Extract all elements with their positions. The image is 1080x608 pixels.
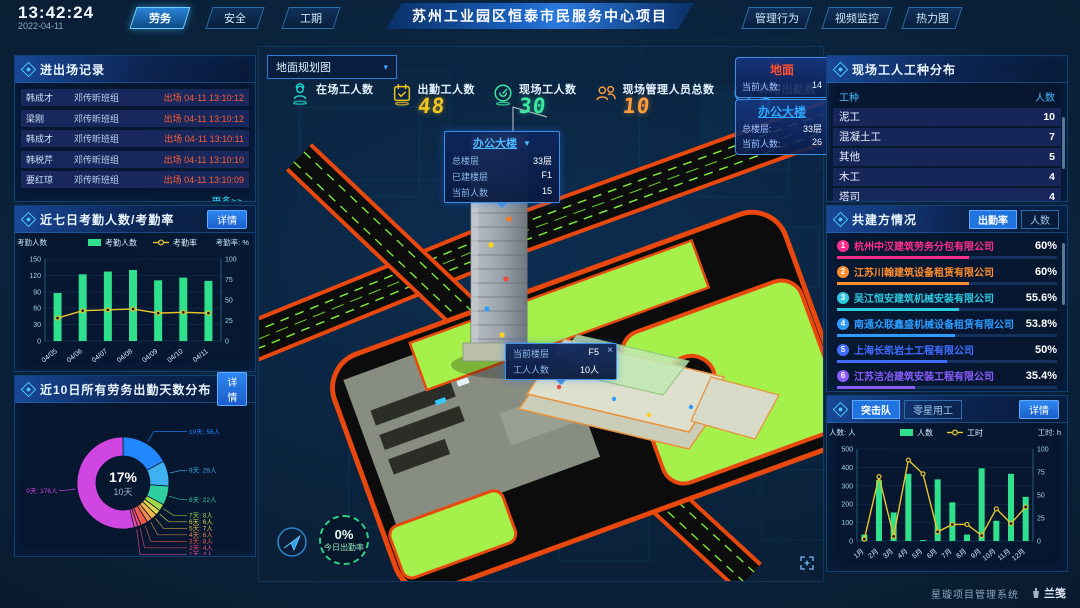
fullscreen-expand-icon[interactable] — [799, 555, 815, 571]
partner-value: 50% — [1035, 344, 1057, 356]
tower-logo-icon — [1031, 587, 1041, 599]
people-icon — [594, 81, 618, 107]
more-link[interactable]: 更多>> — [15, 192, 255, 202]
brand-logo: 兰笺 — [1031, 585, 1066, 601]
gauge-icon — [492, 81, 514, 107]
svg-text:考勤人数: 考勤人数 — [17, 237, 47, 247]
stat-onsite-workers: 在场工人数 — [289, 81, 374, 107]
svg-text:25: 25 — [1037, 516, 1045, 523]
worker-name: 韩税芹 — [26, 153, 74, 166]
worker-type-name: 混凝土工 — [839, 129, 1049, 144]
partner-value: 60% — [1035, 266, 1057, 278]
exit-time: 出场 04-11 13:10:10 — [164, 153, 244, 166]
tab-safety[interactable]: 安全 — [205, 7, 264, 29]
progress-fill — [837, 334, 955, 337]
svg-text:04/07: 04/07 — [91, 348, 109, 364]
entry-record-row: 梁刚邓传昕班组出场 04-11 13:10:12 — [21, 110, 249, 127]
svg-text:100: 100 — [1037, 447, 1049, 454]
current-date: 2022-04-11 — [18, 22, 94, 31]
partner-list: 1杭州中汉建筑劳务分包有限公司60%2江苏川翰建筑设备租赁有限公司60%3吴江恒… — [827, 238, 1067, 389]
team-name: 邓传昕班组 — [74, 91, 164, 104]
exit-time: 出场 04-11 13:10:12 — [164, 112, 244, 125]
scrollbar[interactable] — [1062, 117, 1065, 169]
svg-text:04/06: 04/06 — [66, 348, 84, 364]
panel-diamond-icon — [833, 61, 849, 77]
partner-name: 吴江恒安建筑机械安装有限公司 — [854, 290, 1021, 305]
partner-value: 60% — [1035, 240, 1057, 252]
attendance-days-donut-chart: 10天: 56人9天: 29人8天: 22人7天: 8人6天: 6人5天: 7人… — [15, 403, 251, 555]
worker-types-table: 泥工10混凝土工7其他5木工4塔司4 — [827, 108, 1067, 201]
tab-schedule[interactable]: 工期 — [281, 7, 340, 29]
worker-icon — [289, 81, 311, 107]
partner-name: 江苏洁冶建筑安装工程有限公司 — [854, 368, 1021, 383]
svg-text:75: 75 — [225, 277, 233, 284]
rank-badge: 5 — [837, 344, 849, 356]
svg-text:10天: 10天 — [113, 487, 132, 497]
panel-diamond-icon — [21, 381, 37, 397]
progress-track — [837, 308, 1057, 311]
panel-diamond-icon — [833, 211, 849, 227]
worker-type-count: 4 — [1049, 191, 1055, 201]
rank-badge: 1 — [837, 240, 849, 252]
worker-type-count: 4 — [1049, 171, 1055, 183]
worker-type-name: 塔司 — [839, 189, 1049, 201]
layer-select-value: 地面规划图 — [276, 59, 331, 75]
panel-diamond-icon — [833, 401, 849, 417]
svg-text:10月: 10月 — [981, 547, 998, 562]
svg-text:300: 300 — [841, 483, 853, 490]
worker-name: 韩成才 — [26, 132, 74, 145]
progress-fill — [837, 308, 959, 311]
worker-name: 梁刚 — [26, 112, 74, 125]
team-name: 邓传昕班组 — [74, 132, 164, 145]
svg-text:考勤人数: 考勤人数 — [105, 238, 137, 248]
building-info-popup: 办公大楼 ▼ 总楼层33层 已建楼层F1 当前人数15 — [444, 131, 560, 203]
svg-text:工时: 工时 — [967, 428, 983, 438]
svg-text:75: 75 — [1037, 470, 1045, 477]
svg-text:0: 0 — [37, 339, 41, 346]
chevron-down-icon[interactable]: ▼ — [523, 139, 531, 148]
svg-text:120: 120 — [29, 273, 41, 280]
tab-video-monitor[interactable]: 视频监控 — [821, 7, 892, 29]
tab-headcount[interactable]: 人数 — [1021, 210, 1059, 229]
svg-text:04/09: 04/09 — [141, 348, 159, 364]
tab-assault-team[interactable]: 突击队 — [852, 400, 900, 419]
panel-7day-attendance: 近七日考勤人数/考勤率 详情 0306090120150025507510004… — [14, 205, 256, 372]
map-layer-select[interactable]: 地面规划图 ▾ — [267, 55, 397, 79]
progress-fill — [837, 360, 947, 363]
svg-text:人数: 人数 — [917, 428, 933, 438]
building-popup-title[interactable]: 办公大楼 — [473, 135, 517, 151]
svg-text:04/11: 04/11 — [192, 348, 210, 364]
progress-track — [837, 386, 1057, 389]
panel-title: 进出场记录 — [40, 61, 247, 78]
site-3d-view: 地面规划图 ▾ 在场工人数 出勤工人数48 现场工人数30 — [258, 46, 824, 582]
project-title-banner: 苏州工业园区恒泰市民服务中心项目 — [386, 3, 694, 29]
panel-title: 共建方情况 — [852, 211, 963, 228]
system-name: 星璇项目管理系统 — [931, 586, 1019, 601]
panel-diamond-icon — [21, 211, 37, 227]
svg-text:人数: 人: 人数: 人 — [829, 427, 856, 437]
svg-text:2月: 2月 — [867, 547, 881, 560]
svg-text:1月: 1月 — [852, 547, 866, 560]
svg-text:0: 0 — [1037, 539, 1041, 546]
svg-text:考勤率: 考勤率 — [173, 238, 197, 248]
chevron-down-icon: ▾ — [383, 62, 388, 73]
rank-badge: 3 — [837, 292, 849, 304]
svg-text:7月: 7月 — [940, 547, 954, 560]
worker-type-row: 木工4 — [833, 168, 1061, 186]
worker-type-row: 其他5 — [833, 148, 1061, 166]
partner-name: 杭州中汉建筑劳务分包有限公司 — [854, 238, 1030, 253]
worker-type-count: 5 — [1049, 151, 1055, 163]
worker-name: 韩成才 — [26, 91, 74, 104]
card-title: 地面 — [742, 61, 822, 78]
svg-text:90: 90 — [33, 289, 41, 296]
partner-name: 上海长凯岩土工程有限公司 — [854, 342, 1030, 357]
stat-attendance-workers: 出勤工人数48 — [391, 81, 476, 116]
exit-time: 出场 04-11 13:10:12 — [164, 91, 244, 104]
worker-type-name: 泥工 — [839, 109, 1043, 124]
progress-fill — [837, 256, 969, 259]
svg-text:60: 60 — [33, 306, 41, 313]
svg-text:3月: 3月 — [881, 547, 895, 560]
floor-info-popup: × 当前楼层F5 工人人数10人 — [505, 343, 617, 380]
svg-text:10天: 56人: 10天: 56人 — [189, 428, 221, 436]
partner-value: 55.6% — [1026, 292, 1057, 304]
progress-fill — [837, 282, 969, 285]
worker-type-row: 泥工10 — [833, 108, 1061, 126]
panel-squad: 突击队 零星用工 详情 010020030040050002550751001月… — [826, 395, 1068, 572]
detail-button[interactable]: 详情 — [207, 210, 247, 229]
partner-row: 1杭州中汉建筑劳务分包有限公司60% — [837, 238, 1057, 259]
entry-record-row: 韩税芹邓传昕班组出场 04-11 13:10:10 — [21, 151, 249, 168]
tab-labor[interactable]: 劳务 — [129, 7, 190, 29]
squad-bar-line-chart: 010020030040050002550751001月2月3月4月5月6月7月… — [827, 423, 1063, 569]
tab-heatmap[interactable]: 热力图 — [901, 7, 962, 29]
calendar-icon — [391, 81, 413, 107]
svg-text:50: 50 — [1037, 493, 1045, 500]
svg-text:9月: 9月 — [969, 547, 983, 560]
svg-text:工时: h: 工时: h — [1038, 427, 1061, 437]
svg-text:9天: 29人: 9天: 29人 — [189, 467, 217, 475]
partner-name: 南通众联鑫盛机械设备租赁有限公司 — [854, 316, 1021, 331]
clock: 13:42:24 2022-04-11 — [18, 4, 94, 31]
svg-text:0天: 176人: 0天: 176人 — [26, 487, 58, 495]
close-icon[interactable]: × — [607, 345, 613, 356]
panel-partners: 共建方情况 出勤率 人数 1杭州中汉建筑劳务分包有限公司60%2江苏川翰建筑设备… — [826, 205, 1068, 392]
panel-10day-distribution: 近10日所有劳务出勤天数分布 详情 10天: 56人9天: 29人8天: 22人… — [14, 375, 256, 557]
entry-record-row: 韩成才邓传昕班组出场 04-11 13:10:11 — [21, 130, 249, 147]
svg-text:8天: 22人: 8天: 22人 — [189, 496, 217, 504]
partner-row: 5上海长凯岩土工程有限公司50% — [837, 342, 1057, 363]
partner-row: 2江苏川翰建筑设备租赁有限公司60% — [837, 264, 1057, 285]
project-title: 苏州工业园区恒泰市民服务中心项目 — [386, 6, 694, 26]
partner-row: 6江苏洁冶建筑安装工程有限公司35.4% — [837, 368, 1057, 389]
partner-name: 江苏川翰建筑设备租赁有限公司 — [854, 264, 1030, 279]
entry-exit-table: 韩成才邓传昕班组出场 04-11 13:10:12梁刚邓传昕班组出场 04-11… — [15, 83, 255, 188]
footer: 星璇项目管理系统 兰笺 — [931, 585, 1066, 601]
tab-attendance-rate[interactable]: 出勤率 — [969, 210, 1017, 229]
worker-type-count: 10 — [1043, 111, 1055, 123]
svg-text:04/10: 04/10 — [166, 348, 184, 364]
svg-text:04/08: 04/08 — [116, 348, 134, 364]
top-bar: 13:42:24 2022-04-11 劳务 安全 工期 苏州工业园区恒泰市民服… — [0, 0, 1080, 38]
progress-track — [837, 334, 1057, 337]
svg-text:04/05: 04/05 — [41, 348, 59, 364]
partner-value: 35.4% — [1026, 370, 1057, 382]
svg-text:12月: 12月 — [1010, 547, 1027, 562]
entry-record-row: 韩成才邓传昕班组出场 04-11 13:10:12 — [21, 89, 249, 106]
svg-text:200: 200 — [841, 502, 853, 509]
svg-text:25: 25 — [225, 318, 233, 325]
card-title[interactable]: 办公大楼 — [742, 103, 822, 120]
worker-type-row: 混凝土工7 — [833, 128, 1061, 146]
svg-text:6月: 6月 — [925, 547, 939, 560]
card-ground: 地面 当前人数:14 — [735, 57, 829, 98]
progress-fill — [837, 386, 915, 389]
panel-title: 近10日所有劳务出勤天数分布 — [40, 381, 211, 398]
detail-button[interactable]: 详情 — [1019, 400, 1059, 419]
panel-title: 现场工人工种分布 — [852, 61, 1059, 78]
stat-site-managers: 现场管理人员总数10 — [594, 81, 715, 116]
svg-text:150: 150 — [29, 257, 41, 264]
scrollbar[interactable] — [1062, 243, 1065, 305]
svg-text:500: 500 — [841, 447, 853, 454]
today-attendance-badge: 0% 今日出勤率 — [319, 515, 369, 565]
progress-track — [837, 256, 1057, 259]
svg-text:4月: 4月 — [896, 547, 910, 560]
attendance-bar-line-chart: 0306090120150025507510004/0504/0604/0704… — [15, 233, 251, 369]
exit-time: 出场 04-11 13:10:09 — [164, 173, 244, 186]
team-name: 邓传昕班组 — [74, 112, 164, 125]
svg-text:17%: 17% — [109, 469, 138, 485]
team-name: 邓传昕班组 — [74, 153, 164, 166]
worker-name: 要红琼 — [26, 173, 74, 186]
compass-icon[interactable] — [276, 526, 308, 558]
svg-text:考勤率: %: 考勤率: % — [216, 237, 250, 247]
tab-casual-labor[interactable]: 零星用工 — [904, 400, 962, 419]
exit-time: 出场 04-11 13:10:11 — [164, 132, 244, 145]
svg-text:50: 50 — [225, 298, 233, 305]
current-time: 13:42:24 — [18, 4, 94, 22]
rank-badge: 2 — [837, 266, 849, 278]
rank-badge: 6 — [837, 370, 849, 382]
rank-badge: 4 — [837, 318, 849, 330]
worker-type-count: 7 — [1049, 131, 1055, 143]
svg-text:1天: 4人: 1天: 4人 — [189, 551, 213, 555]
svg-text:30: 30 — [33, 322, 41, 329]
progress-track — [837, 360, 1057, 363]
svg-text:8月: 8月 — [955, 547, 969, 560]
svg-text:5月: 5月 — [911, 547, 925, 560]
worker-type-row: 塔司4 — [833, 188, 1061, 201]
worker-type-name: 其他 — [839, 149, 1049, 164]
team-name: 邓传昕班组 — [74, 173, 164, 186]
smart-site-dashboard: 13:42:24 2022-04-11 劳务 安全 工期 苏州工业园区恒泰市民服… — [0, 0, 1080, 608]
panel-entry-exit-records: 进出场记录 韩成才邓传昕班组出场 04-11 13:10:12梁刚邓传昕班组出场… — [14, 55, 256, 202]
partner-row: 4南通众联鑫盛机械设备租赁有限公司53.8% — [837, 316, 1057, 337]
progress-track — [837, 282, 1057, 285]
svg-text:400: 400 — [841, 465, 853, 472]
card-office-building: 办公大楼 总楼层:33层 当前人数:26 — [735, 99, 829, 155]
partner-value: 53.8% — [1026, 318, 1057, 330]
worker-type-name: 木工 — [839, 169, 1049, 184]
svg-text:0: 0 — [225, 339, 229, 346]
stat-site-workers: 现场工人数30 — [492, 81, 577, 116]
svg-text:100: 100 — [225, 257, 237, 264]
svg-text:100: 100 — [841, 520, 853, 527]
detail-button[interactable]: 详情 — [217, 372, 247, 406]
panel-diamond-icon — [21, 61, 37, 77]
panel-worker-types: 现场工人工种分布 工种人数 泥工10混凝土工7其他5木工4塔司4 — [826, 55, 1068, 202]
panel-title: 近七日考勤人数/考勤率 — [40, 211, 201, 228]
entry-record-row: 要红琼邓传昕班组出场 04-11 13:10:09 — [21, 171, 249, 188]
tab-management-behavior[interactable]: 管理行为 — [741, 7, 812, 29]
svg-text:0: 0 — [849, 539, 853, 546]
partner-row: 3吴江恒安建筑机械安装有限公司55.6% — [837, 290, 1057, 311]
svg-text:11月: 11月 — [996, 547, 1012, 562]
